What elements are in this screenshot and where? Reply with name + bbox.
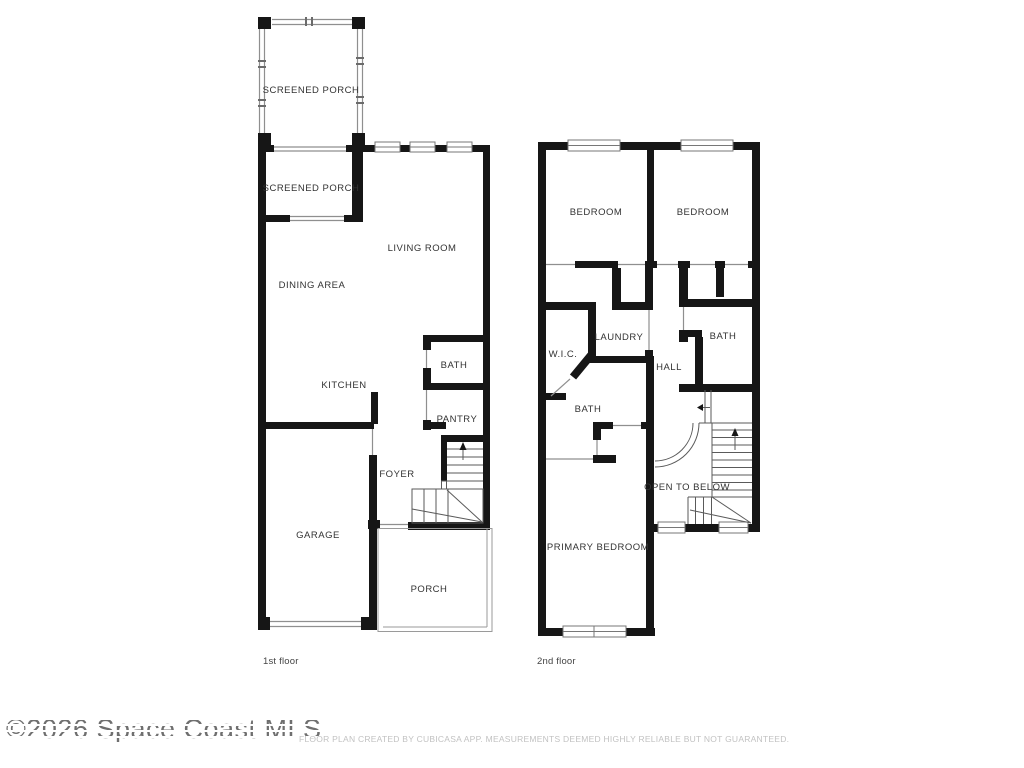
room-label-screened-porch-lower: SCREENED PORCH xyxy=(263,183,360,194)
room-label-living-room: LIVING ROOM xyxy=(388,243,457,254)
floor-name-1st: 1st floor xyxy=(263,656,299,667)
room-label-hall: HALL xyxy=(656,362,682,373)
room-label-porch: PORCH xyxy=(411,584,448,595)
first-floor-windows xyxy=(375,142,472,152)
room-label-bath-1st: BATH xyxy=(441,360,468,371)
room-label-bath-2nd-right: BATH xyxy=(710,331,737,342)
room-label-bath-2nd-left: BATH xyxy=(575,404,602,415)
front-porch-outline xyxy=(378,529,492,632)
room-label-screened-porch-upper: SCREENED PORCH xyxy=(263,85,360,96)
room-label-pantry: PANTRY xyxy=(437,414,478,425)
floor-plan-svg: SCREENED PORCH SCREENED PORCH LIVING ROO… xyxy=(0,0,1024,768)
second-floor-plan: BEDROOM BEDROOM W.I.C. LAUNDRY HALL BATH… xyxy=(538,140,760,637)
room-label-bedroom-left: BEDROOM xyxy=(570,207,623,218)
room-label-wic: W.I.C. xyxy=(549,349,578,360)
stairs-up-arrow-2 xyxy=(732,428,739,436)
room-label-kitchen: KITCHEN xyxy=(321,380,366,391)
stairs-down-arrow xyxy=(697,404,703,411)
first-floor-plan: SCREENED PORCH SCREENED PORCH LIVING ROO… xyxy=(258,17,492,632)
upper-screened-porch-structure xyxy=(258,17,365,145)
stairs-up-arrow xyxy=(460,442,467,450)
room-label-open-to-below: OPEN TO BELOW xyxy=(644,482,730,493)
first-floor-stairs xyxy=(412,448,483,523)
room-label-foyer: FOYER xyxy=(379,469,414,480)
room-label-garage: GARAGE xyxy=(296,530,340,541)
second-floor-stairs xyxy=(655,390,752,524)
floor-plan-canvas: SCREENED PORCH SCREENED PORCH LIVING ROO… xyxy=(0,0,1024,768)
mls-watermark: ©2026 Space Coast MLS xyxy=(6,714,322,745)
room-label-dining-area: DINING AREA xyxy=(279,280,346,291)
disclaimer-text: FLOOR PLAN CREATED BY CUBICASA APP. MEAS… xyxy=(299,734,759,744)
room-label-bedroom-right: BEDROOM xyxy=(677,207,730,218)
floor-name-2nd: 2nd floor xyxy=(537,656,576,667)
room-label-laundry: LAUNDRY xyxy=(595,332,644,343)
room-label-primary-bedroom: PRIMARY BEDROOM xyxy=(547,542,649,553)
first-floor-walls xyxy=(258,145,490,630)
